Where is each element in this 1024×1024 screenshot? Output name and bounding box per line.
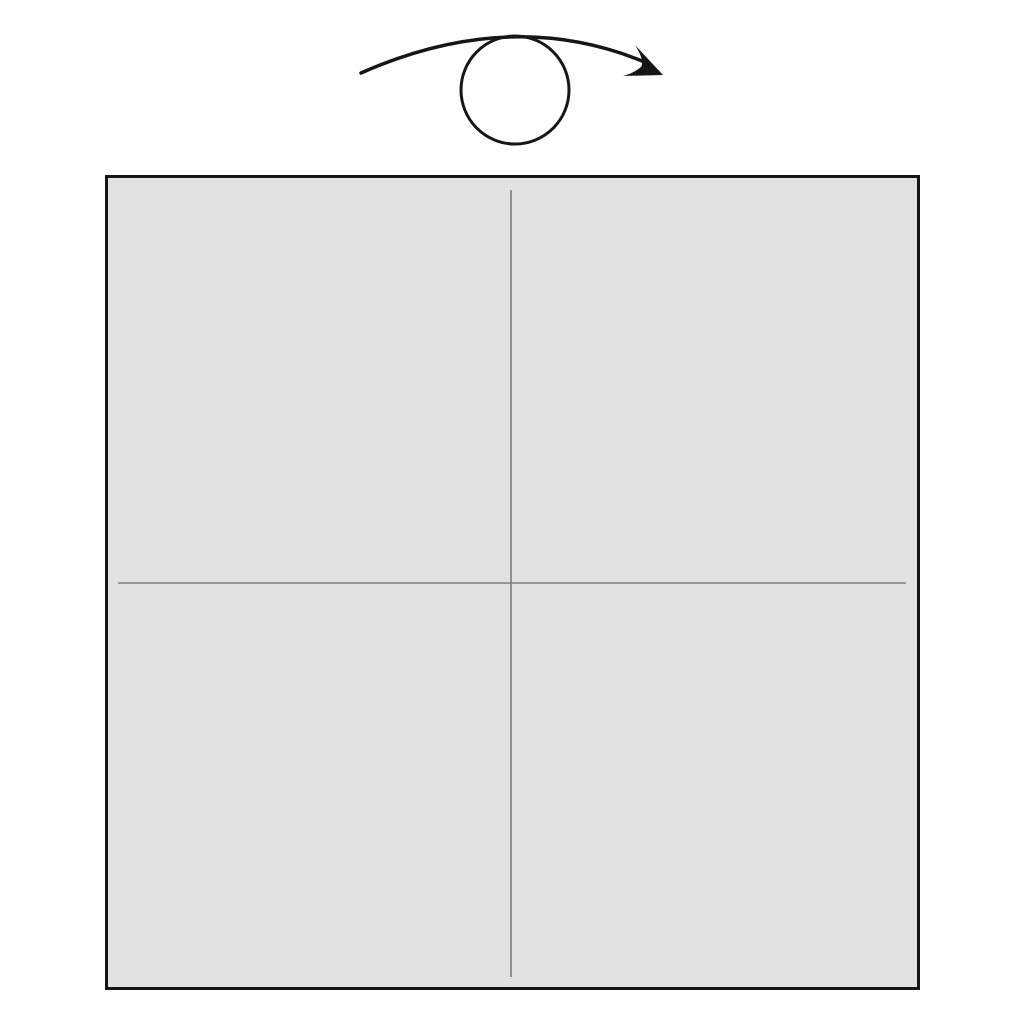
origami-diagram (0, 0, 1024, 1024)
turn-over-circle (461, 36, 569, 144)
page: { "diagram": { "name": "origami-step-dia… (0, 0, 1024, 1024)
turn-over-arc (361, 37, 647, 73)
turn-over-symbol (361, 36, 663, 144)
diagram-stage (0, 0, 1024, 1024)
arrowhead-icon (623, 45, 663, 76)
paper-group (107, 177, 919, 989)
